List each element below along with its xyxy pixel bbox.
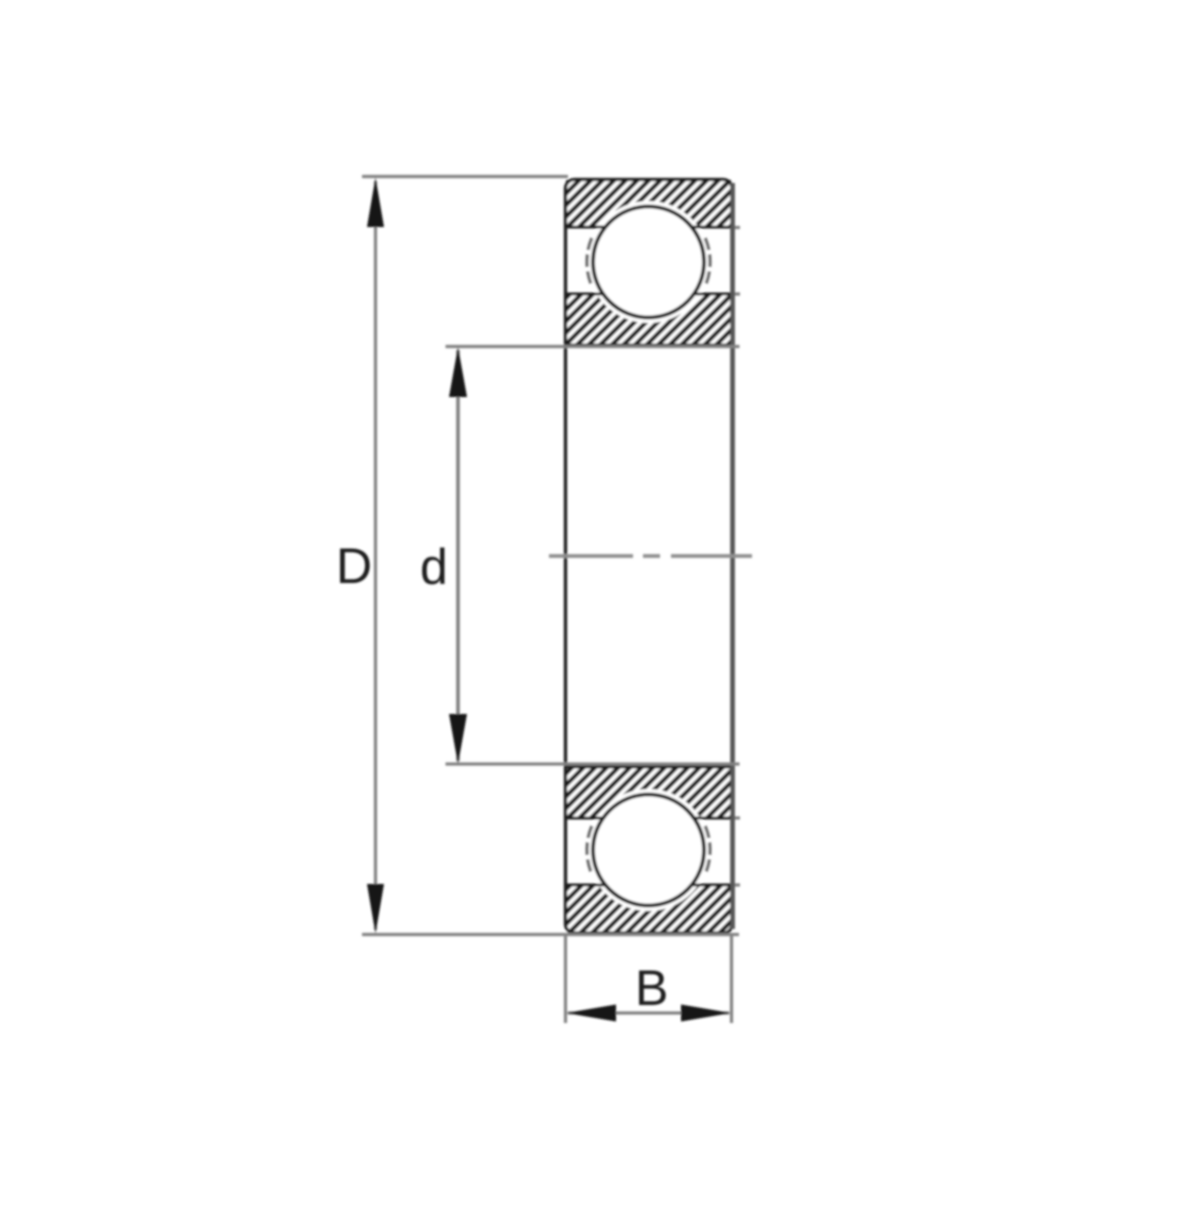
- svg-text:D: D: [336, 538, 372, 594]
- svg-text:B: B: [635, 960, 668, 1016]
- svg-text:d: d: [420, 539, 448, 595]
